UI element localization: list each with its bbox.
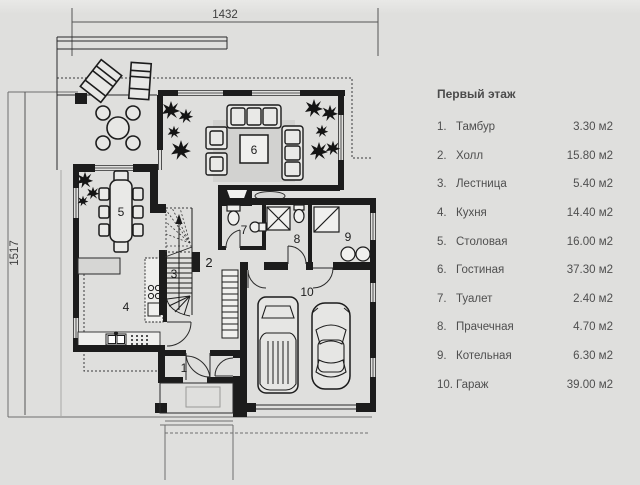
boiler-door <box>313 268 333 288</box>
lounge-chair-2 <box>129 62 151 99</box>
car-pickup <box>258 297 298 393</box>
legend-item-8: 8.Прачечная4.70 м2 <box>437 313 613 342</box>
legend-item-number: 8. <box>437 321 456 333</box>
terrace <box>57 37 227 170</box>
boiler-room: 9 <box>313 207 370 288</box>
legend-item-number: 3. <box>437 178 456 190</box>
legend-item-3: 3.Лестница5.40 м2 <box>437 170 613 199</box>
toilet-door <box>226 230 240 248</box>
room-label-garage: 10 <box>300 285 314 299</box>
wc-bowl <box>228 211 239 225</box>
kitchen-sink <box>106 332 126 345</box>
legend-item-name: Котельная <box>456 350 573 362</box>
kitchen-hall-door <box>167 322 191 346</box>
legend-rows: 1.Тамбур3.30 м2 2.Холл15.80 м2 3.Лестниц… <box>437 113 613 399</box>
legend-item-area: 4.70 м2 <box>573 321 613 333</box>
legend-item-7: 7.Туалет2.40 м2 <box>437 285 613 314</box>
room-label-toilet: 7 <box>241 223 248 237</box>
laundry-sink <box>294 210 304 223</box>
legend-item-name: Холл <box>456 150 567 162</box>
stairs-arrow <box>176 214 183 310</box>
garage-door <box>256 405 356 409</box>
boiler-tank-2 <box>356 247 370 261</box>
room-label-boiler: 9 <box>345 230 352 244</box>
page: 1432 1517 <box>0 0 640 480</box>
hall: 2 <box>167 255 238 346</box>
legend-item-area: 3.30 м2 <box>573 121 613 133</box>
toilet-room: 7 <box>226 205 266 248</box>
hall-garage-door <box>248 270 266 288</box>
legend-item-number: 10. <box>437 379 456 391</box>
dimension-top-label: 1432 <box>212 9 238 21</box>
legend-title: Первый этаж <box>437 87 613 101</box>
legend-item-area: 15.80 м2 <box>567 150 613 162</box>
garage: 10 <box>240 270 376 417</box>
legend-item-number: 4. <box>437 207 456 219</box>
legend-item-name: Тамбур <box>456 121 573 133</box>
legend-item-name: Столовая <box>456 236 567 248</box>
laundry-room: 8 <box>267 205 306 264</box>
legend-item-area: 16.00 м2 <box>567 236 613 248</box>
room-label-hall: 2 <box>205 255 212 270</box>
entry-doors <box>186 353 233 380</box>
stairs: 3 <box>155 204 200 316</box>
legend-item-number: 6. <box>437 264 456 276</box>
legend-item-2: 2.Холл15.80 м2 <box>437 142 613 171</box>
legend-item-area: 2.40 м2 <box>573 293 613 305</box>
room-label-dining: 5 <box>118 205 125 219</box>
boiler-tank-1 <box>341 247 355 261</box>
legend-item-name: Лестница <box>456 178 573 190</box>
porch-mat <box>186 387 220 407</box>
legend: Первый этаж 1.Тамбур3.30 м2 2.Холл15.80 … <box>437 87 613 399</box>
room-label-kitchen: 4 <box>123 300 130 314</box>
room-label-stairs: 3 <box>171 267 178 281</box>
legend-item-10: 10.Гараж39.00 м2 <box>437 370 613 399</box>
washbasin-counter <box>259 223 266 231</box>
legend-item-number: 2. <box>437 150 456 162</box>
kitchen-island <box>78 258 120 274</box>
dimension-left: 1517 <box>9 92 25 415</box>
legend-item-6: 6.Гостиная37.30 м2 <box>437 256 613 285</box>
room-label-entry: 1 <box>181 361 188 375</box>
entry: 1 <box>155 345 240 417</box>
legend-item-9: 9.Котельная6.30 м2 <box>437 342 613 371</box>
legend-item-name: Гостиная <box>456 264 567 276</box>
legend-item-5: 5.Столовая16.00 м2 <box>437 227 613 256</box>
terrace-table-set <box>96 106 140 150</box>
dining-plant <box>77 172 99 207</box>
wc-tank <box>227 205 240 211</box>
legend-item-number: 7. <box>437 293 456 305</box>
dimension-left-label: 1517 <box>9 240 21 266</box>
wardrobe <box>222 270 238 338</box>
kitchen: 4 <box>73 250 167 352</box>
legend-item-area: 5.40 м2 <box>573 178 613 190</box>
legend-item-1: 1.Тамбур3.30 м2 <box>437 113 613 142</box>
laundry-door <box>288 246 306 264</box>
legend-item-number: 5. <box>437 236 456 248</box>
legend-item-number: 1. <box>437 121 456 133</box>
floor-plan: 1432 1517 <box>0 0 430 480</box>
legend-item-name: Туалет <box>456 293 573 305</box>
room-label-living: 6 <box>251 143 258 157</box>
legend-item-4: 4.Кухня14.40 м2 <box>437 199 613 228</box>
legend-item-name: Гараж <box>456 379 567 391</box>
legend-item-area: 6.30 м2 <box>573 350 613 362</box>
car-sedan <box>312 303 350 389</box>
legend-item-name: Прачечная <box>456 321 573 333</box>
legend-item-area: 39.00 м2 <box>567 379 613 391</box>
legend-item-number: 9. <box>437 350 456 362</box>
legend-item-area: 14.40 м2 <box>567 207 613 219</box>
legend-item-name: Кухня <box>456 207 567 219</box>
floor-plan-area: 1432 1517 <box>0 0 430 480</box>
legend-item-area: 37.30 м2 <box>567 264 613 276</box>
terrace-column <box>75 93 87 104</box>
room-label-laundry: 8 <box>294 232 301 246</box>
